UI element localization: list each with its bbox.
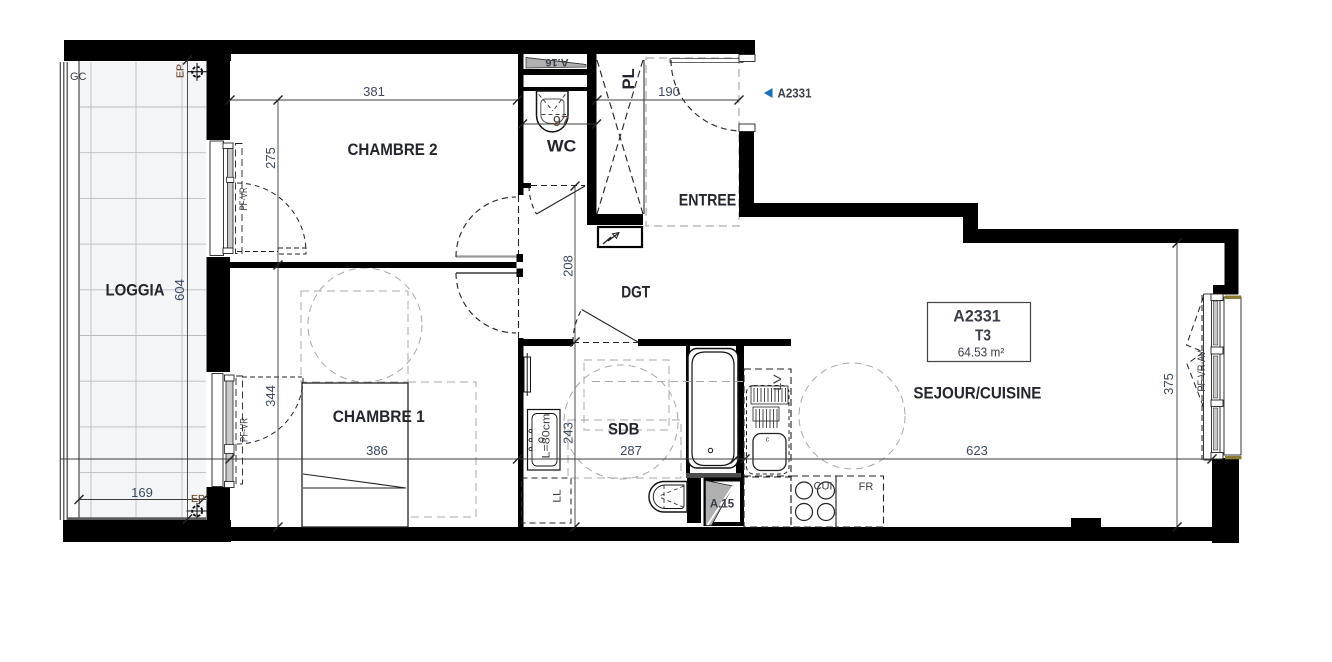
svg-text:169: 169 (131, 485, 153, 500)
svg-text:623: 623 (966, 443, 988, 458)
svg-text:A.15: A.15 (710, 499, 735, 511)
svg-text:208: 208 (561, 255, 576, 277)
svg-text:64.53 m²: 64.53 m² (958, 346, 1005, 360)
svg-text:SEJOUR/CUISINE: SEJOUR/CUISINE (913, 385, 1041, 403)
svg-text:CUI: CUI (814, 481, 833, 493)
svg-text:SDB: SDB (608, 421, 640, 439)
svg-text:386: 386 (366, 443, 388, 458)
svg-text:287: 287 (620, 443, 642, 458)
svg-text:604: 604 (172, 279, 187, 301)
svg-text:A2331: A2331 (953, 307, 1001, 326)
svg-text:190: 190 (658, 84, 680, 99)
svg-text:243: 243 (561, 422, 576, 444)
svg-text:L=80cm: L=80cm (541, 414, 553, 459)
svg-text:PF-VR: PF-VR (238, 187, 250, 210)
svg-text:T3: T3 (975, 328, 991, 345)
svg-text:ENTREE: ENTREE (679, 192, 737, 210)
svg-text:CHAMBRE 2: CHAMBRE 2 (348, 141, 438, 159)
svg-text:PF-VR-AV: PF-VR-AV (1196, 350, 1208, 392)
svg-text:LOGGIA: LOGGIA (106, 282, 165, 300)
svg-text:97: 97 (553, 114, 569, 130)
svg-text:PL: PL (620, 68, 638, 89)
svg-text:FR: FR (859, 481, 874, 493)
svg-text:381: 381 (363, 84, 385, 99)
svg-text:A2331: A2331 (778, 87, 812, 101)
svg-text:LL: LL (552, 489, 564, 503)
svg-text:c: c (766, 437, 770, 444)
svg-text:PF-VR: PF-VR (239, 418, 251, 442)
svg-text:EP: EP (175, 64, 187, 78)
svg-text:WC: WC (547, 138, 577, 156)
svg-text:344: 344 (263, 385, 278, 407)
svg-text:375: 375 (1161, 373, 1176, 395)
svg-text:LV: LV (772, 373, 784, 390)
svg-text:CHAMBRE 1: CHAMBRE 1 (333, 408, 425, 426)
svg-text:DGT: DGT (621, 284, 650, 302)
svg-text:GC: GC (70, 71, 87, 83)
svg-text:275: 275 (263, 147, 278, 169)
svg-text:EP: EP (191, 493, 205, 505)
svg-text:A.16: A.16 (545, 56, 568, 68)
